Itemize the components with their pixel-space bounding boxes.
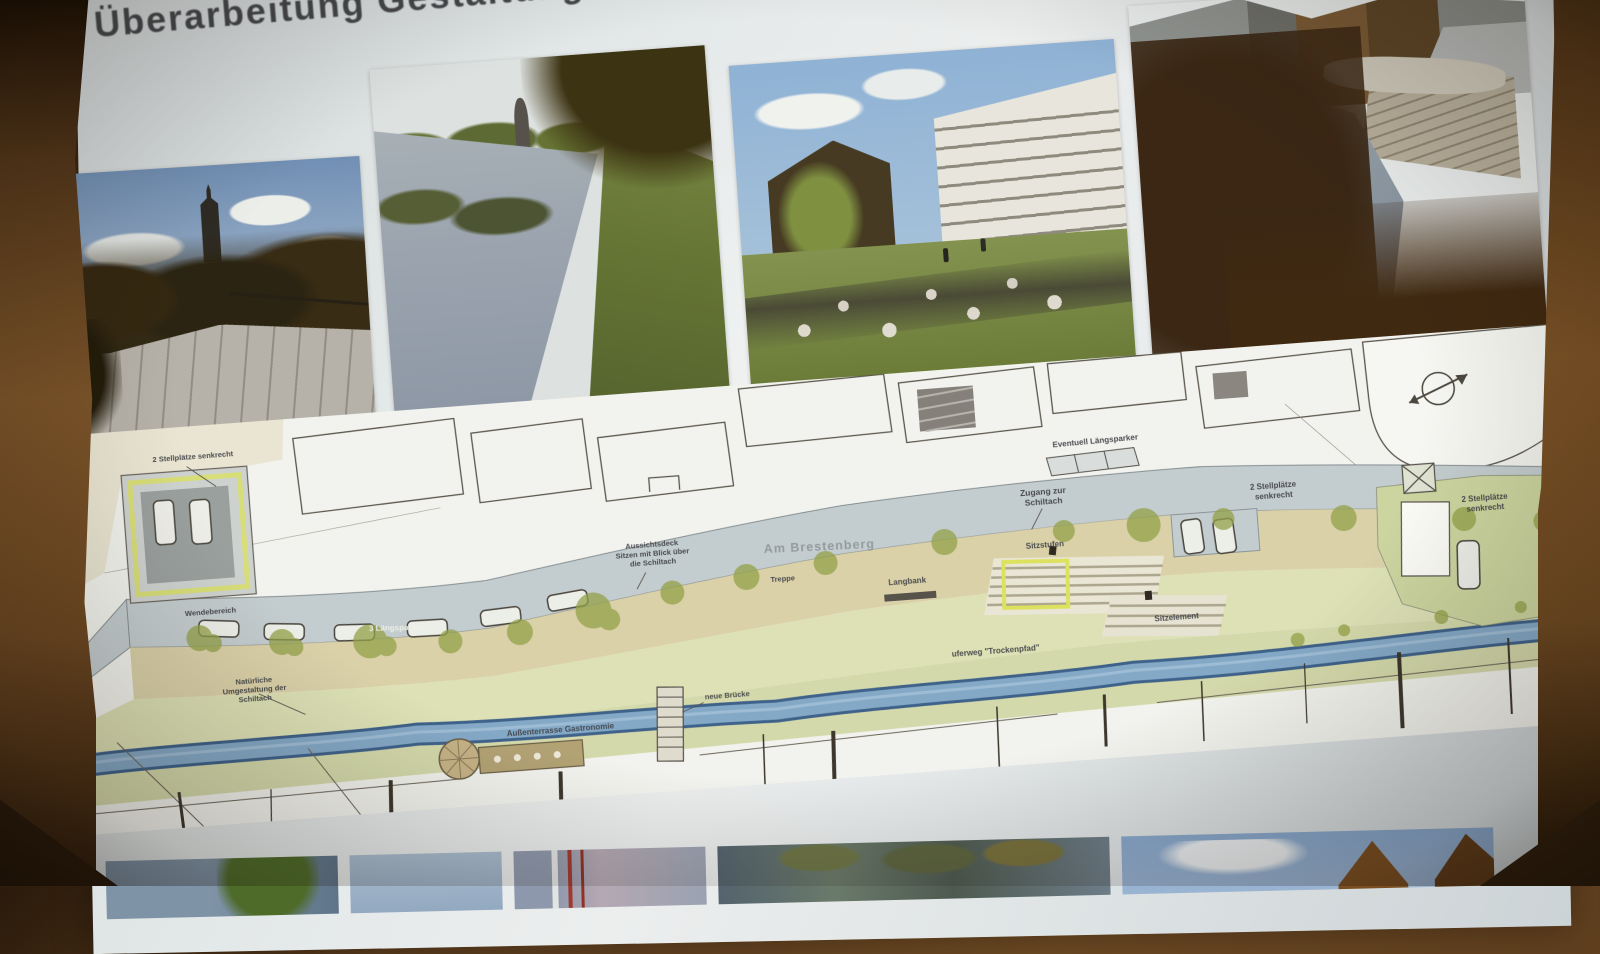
photo-sky: [349, 852, 502, 914]
parking-court: [121, 466, 256, 603]
projected-slide-photo: { "slide": { "title": "Überarbeitung Ges…: [0, 0, 1600, 886]
car-icon: [153, 500, 176, 545]
photo-river-reflections: [717, 837, 1110, 905]
photo-water-tree: [106, 856, 339, 920]
red-stripe: [581, 850, 585, 908]
bridge: [657, 687, 683, 761]
tree: [217, 856, 321, 920]
red-stripe: [567, 850, 572, 908]
person: [943, 248, 949, 262]
photo-apartments-stream: [729, 39, 1138, 405]
white-stripe: [552, 850, 559, 908]
cloud: [1159, 838, 1309, 876]
photo-stream-stone-steps: [1128, 0, 1548, 361]
gabled-house: [1337, 840, 1409, 895]
car-icon: [189, 499, 212, 544]
curved-parcel: [1362, 323, 1568, 476]
overhanging-foliage: [519, 45, 715, 197]
photo-facade-detail: [513, 847, 706, 910]
laengsparker-bay: [1046, 447, 1139, 476]
reflections: [756, 838, 1070, 880]
car-icon: [1457, 541, 1480, 589]
photo-sky-gabled-houses: [1121, 827, 1494, 894]
